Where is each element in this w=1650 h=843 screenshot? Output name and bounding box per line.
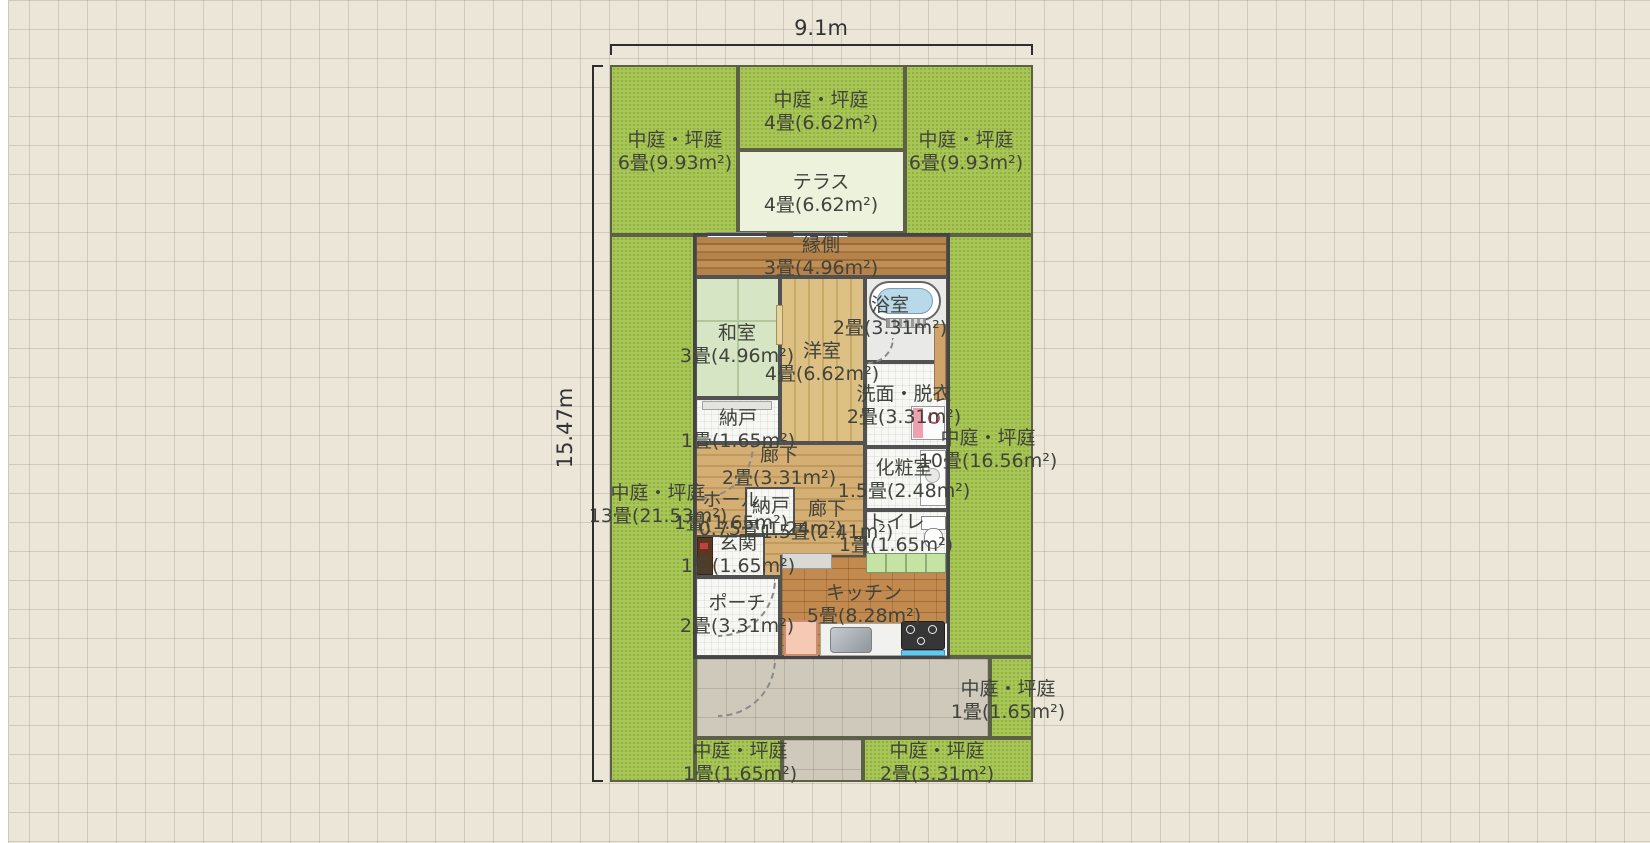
room-nando-2[interactable] [745,487,795,535]
garden-bottom-right[interactable] [863,738,1033,782]
stove-burner [906,625,915,634]
toilet-icon[interactable] [924,528,943,549]
dimension-tick-height-top [592,65,603,67]
garden-right-strip[interactable] [948,235,1033,657]
kitchen-sink-icon[interactable] [830,627,872,653]
floorplan-canvas[interactable]: 9.1m 15.47m [0,0,1650,843]
garden-top-right[interactable] [905,65,1033,235]
vanity-basin [925,468,940,483]
window-icon[interactable] [707,232,767,238]
stove-burner [928,625,937,634]
room-youshitsu[interactable] [780,277,865,443]
tatami-seam [737,279,739,396]
kitchen-cabinets[interactable] [866,553,946,573]
dimension-line-height [592,65,594,782]
garden-right-small[interactable] [990,657,1033,738]
garden-bottom-left[interactable] [695,738,782,782]
tatami-seam [697,320,778,322]
dimension-tick-width-right [1031,44,1033,55]
room-engawa[interactable] [695,235,948,277]
window-icon[interactable] [793,232,848,238]
dimension-width-label: 9.1m [794,16,848,40]
shoe-cabinet-accent [700,543,708,549]
kitchen-counter[interactable] [782,553,832,569]
dimension-line-width [610,44,1033,46]
terrace[interactable] [738,150,905,233]
bath-mat-icon[interactable] [886,318,926,328]
paved-court-south[interactable] [782,738,863,782]
dimension-tick-height-bottom [592,780,603,782]
garden-top-mid[interactable] [738,65,905,150]
closet-shelf-icon[interactable] [702,401,772,410]
washing-machine-drum [928,412,940,424]
sliding-door-icon[interactable] [776,305,783,345]
dimension-height-label: 15.47m [553,388,577,469]
refrigerator-icon[interactable] [784,620,818,656]
garden-top-left[interactable] [610,65,738,235]
bathtub-water [877,288,933,314]
stove-burner [917,637,925,645]
canvas-edge-strip [0,0,9,843]
stove-front-accent [901,650,945,656]
dimension-tick-width-left [610,44,612,55]
washing-machine-accent [913,408,923,438]
shower-panel-icon[interactable] [934,324,946,400]
garden-left-strip[interactable] [610,235,695,782]
